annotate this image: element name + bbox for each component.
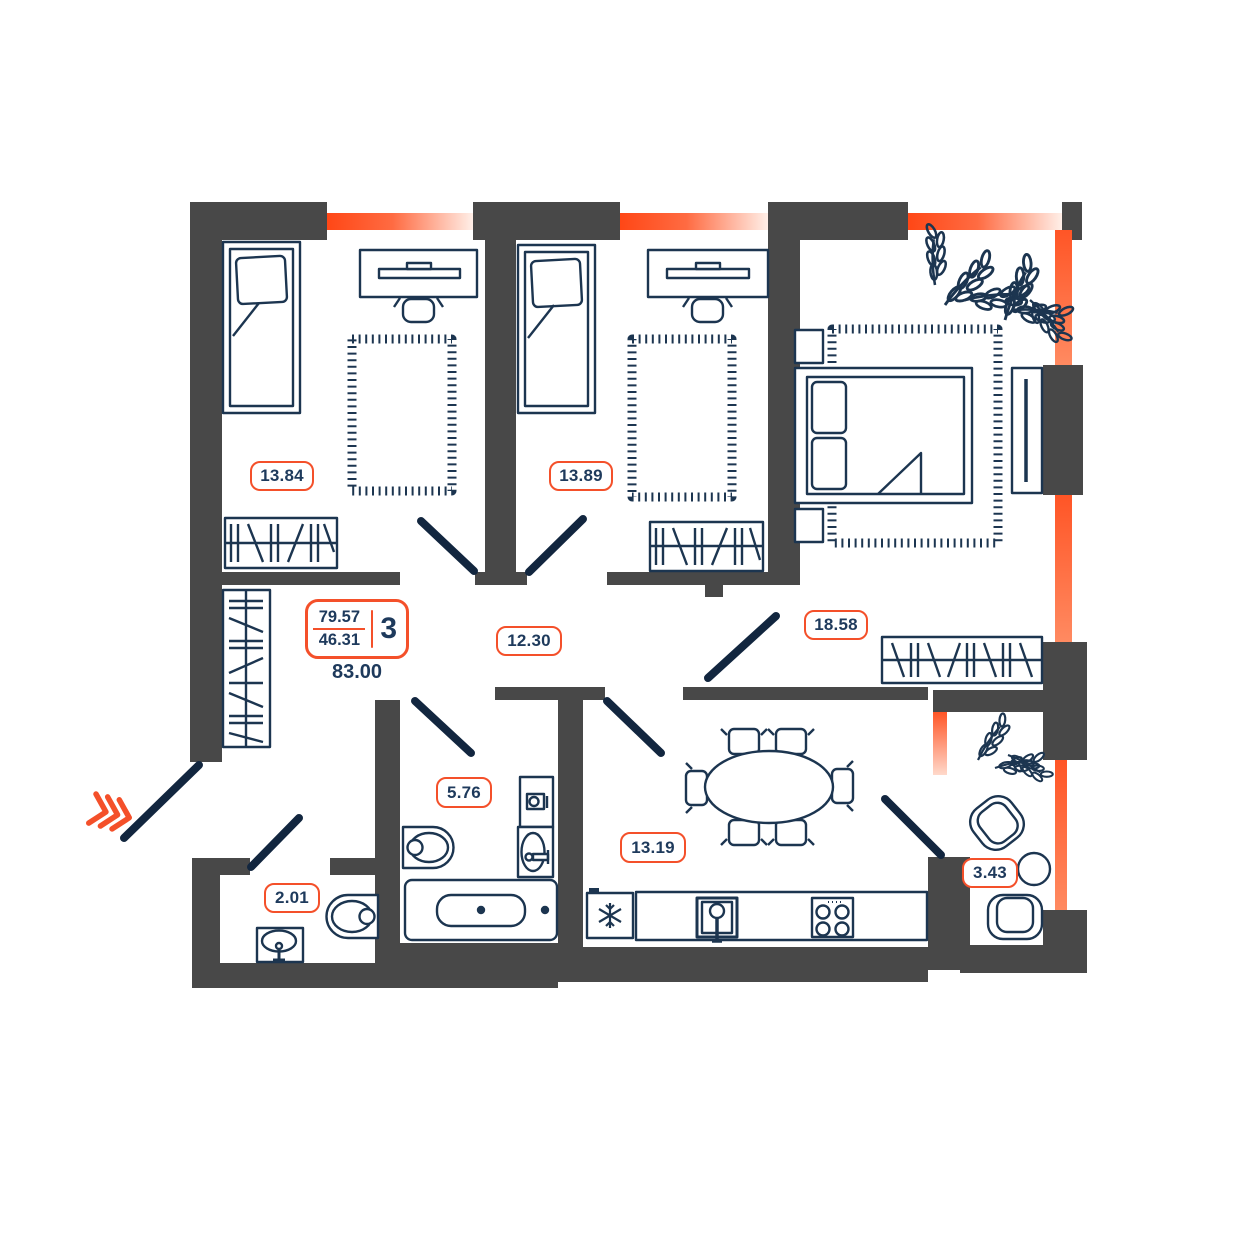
- rug: [632, 339, 732, 497]
- bed: [223, 242, 300, 413]
- balcony-furniture: [963, 711, 1055, 939]
- bedroom-2-door: [529, 519, 583, 572]
- hall-door: [251, 818, 299, 867]
- apartment-summary-box: 79.57 46.31 3: [305, 599, 409, 659]
- wardrobe: [882, 637, 1042, 683]
- stove: [812, 898, 853, 937]
- bedroom-1-furniture: [223, 242, 477, 568]
- summary-areas: 79.57 46.31: [308, 608, 371, 650]
- summary-area-total: 83.00: [305, 661, 409, 684]
- window-icon: [1055, 760, 1067, 910]
- floor-plan-drawing: [0, 0, 1241, 1241]
- bedroom-2-furniture: [518, 245, 768, 571]
- summary-divider-vertical: [371, 610, 374, 648]
- wardrobe: [225, 518, 337, 568]
- area-label-wc: 2.01: [264, 883, 320, 913]
- chair: [403, 299, 434, 322]
- area-label-bathroom: 5.76: [436, 777, 492, 808]
- balcony-door: [885, 799, 941, 855]
- armchair: [988, 895, 1042, 939]
- window-icon: [620, 213, 768, 230]
- fridge: [587, 890, 633, 938]
- hallway-closet: [223, 590, 270, 747]
- chair: [776, 820, 806, 845]
- chair: [729, 729, 759, 754]
- nightstand: [795, 509, 823, 542]
- area-label-bedroom-2: 13.89: [549, 461, 613, 491]
- washing-machine: [520, 777, 553, 827]
- toilet: [327, 895, 379, 938]
- table: [705, 751, 833, 823]
- sink: [257, 928, 303, 962]
- dining-set: [686, 729, 853, 845]
- tv-console: [1012, 368, 1042, 493]
- area-label-hallway: 12.30: [496, 626, 562, 656]
- plant-icon: [902, 221, 1076, 347]
- kitchen-door: [607, 701, 661, 753]
- chair: [692, 299, 723, 322]
- kitchen-sink: [697, 898, 737, 941]
- window-icon: [1055, 230, 1072, 365]
- armchair: [963, 789, 1030, 856]
- window-icon: [933, 712, 947, 775]
- wardrobe: [650, 522, 763, 571]
- bedroom-1-door: [421, 521, 474, 571]
- nightstand: [795, 330, 823, 363]
- entrance-door: [124, 765, 199, 838]
- summary-rooms-count: 3: [380, 612, 397, 646]
- bed: [518, 245, 595, 413]
- toilet: [403, 827, 453, 868]
- kitchen-counter: [636, 892, 927, 940]
- area-label-kitchen: 13.19: [620, 832, 686, 863]
- window-icon: [1055, 495, 1072, 642]
- chair: [776, 729, 806, 754]
- plant-icon: [964, 711, 1055, 791]
- bathroom-door: [415, 701, 471, 753]
- summary-area-main: 79.57: [319, 608, 360, 627]
- double-bed: [795, 368, 972, 503]
- sink: [518, 827, 553, 877]
- window-icon: [327, 213, 473, 230]
- living-room-door: [708, 616, 776, 678]
- window-icon: [908, 213, 1062, 230]
- chair: [729, 820, 759, 845]
- bathtub: [405, 880, 557, 940]
- summary-area-living: 46.31: [319, 631, 360, 650]
- area-label-living-room: 18.58: [804, 610, 868, 640]
- entrance-chevrons-icon: [89, 794, 133, 832]
- summary-divider-line: [313, 628, 365, 630]
- desk: [648, 250, 768, 322]
- walls: [190, 202, 1087, 988]
- side-table: [1018, 853, 1050, 885]
- desk: [360, 250, 477, 322]
- chair: [832, 769, 853, 803]
- floor-plan: 13.84 13.89 18.58 12.30 5.76 2.01 13.19 …: [0, 0, 1241, 1241]
- area-label-bedroom-1: 13.84: [250, 461, 314, 491]
- area-label-balcony: 3.43: [962, 858, 1018, 888]
- rug: [352, 339, 452, 491]
